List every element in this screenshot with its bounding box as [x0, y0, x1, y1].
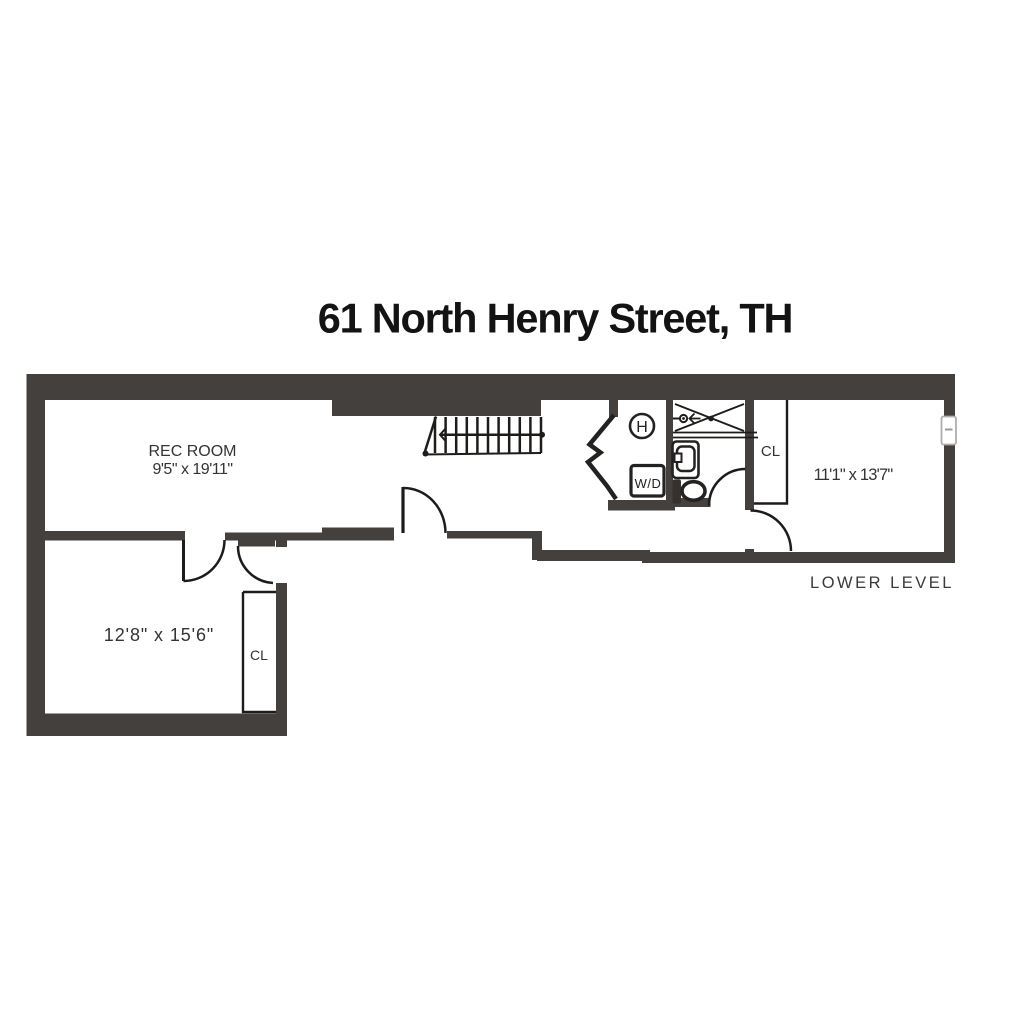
svg-text:H: H: [636, 419, 648, 436]
svg-text:CL: CL: [250, 647, 268, 663]
svg-text:LOWER LEVEL: LOWER LEVEL: [810, 574, 954, 592]
svg-text:12'8" x 15'6": 12'8" x 15'6": [104, 625, 214, 645]
svg-text:61 North Henry Street, TH: 61 North Henry Street, TH: [318, 295, 793, 342]
svg-text:REC ROOM: REC ROOM: [149, 443, 237, 460]
svg-text:9'5" x 19'11": 9'5" x 19'11": [152, 461, 232, 478]
svg-text:CL: CL: [761, 443, 780, 460]
svg-text:11'1" x 13'7": 11'1" x 13'7": [814, 466, 894, 484]
svg-text:W/D: W/D: [635, 476, 662, 491]
